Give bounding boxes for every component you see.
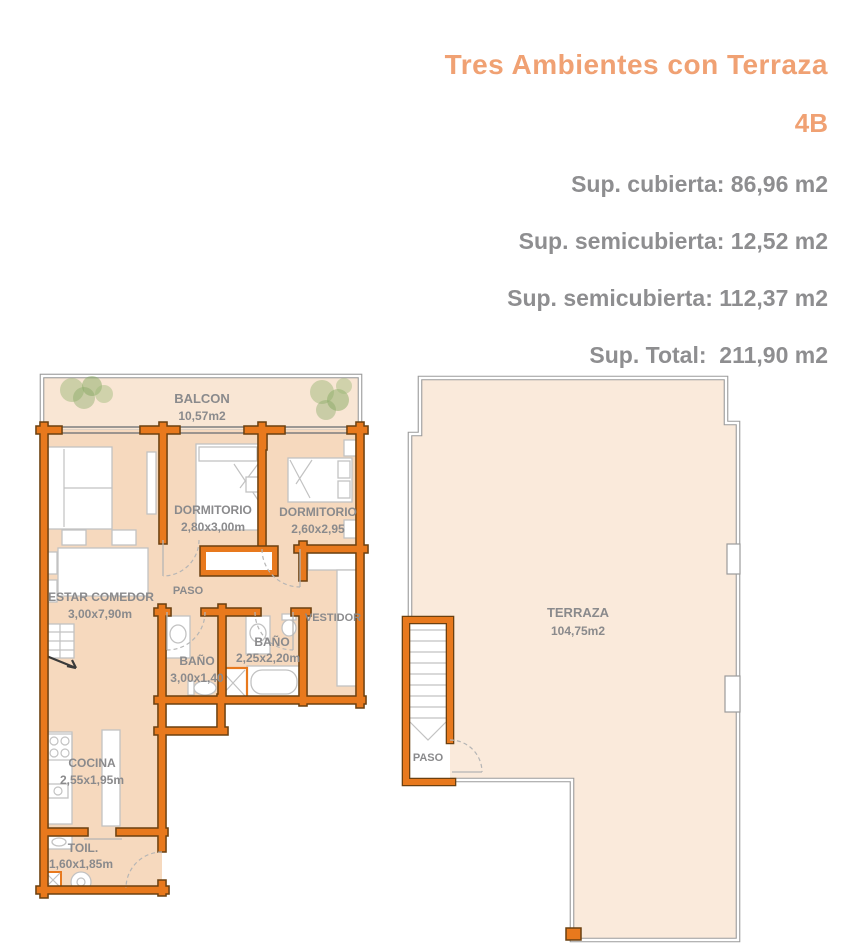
room-label-paso: PASO [173,585,204,597]
apartment-plan: BALCON 10,57m2 DORMITORIO 2,80x3,00m DOR… [40,376,364,894]
room-dims-dormitorio-2: 2,60x2,95 [291,522,345,536]
room-label-balcon: BALCON [174,391,230,406]
wall-closet [200,546,278,576]
floor-plans-canvas: BALCON 10,57m2 DORMITORIO 2,80x3,00m DOR… [0,0,856,950]
room-label-toil: TOIL. [68,841,98,855]
room-label-bano-1: BAÑO [179,653,214,668]
room-dims-estar: 3,00x7,90m [68,607,132,621]
room-label-bano-2: BAÑO [254,634,289,649]
tv-unit-icon [147,452,156,514]
duct-recess [164,702,217,729]
room-label-paso: PASO [413,752,444,764]
terrace-floor [410,378,738,940]
terrace-plan: TERRAZA 104,75m2 PASO [406,378,740,940]
room-dims-balcon: 10,57m2 [178,409,226,423]
room-dims-cocina: 2,55x1,95m [60,773,124,787]
bed-icon [196,444,260,530]
room-dims-bano-1: 3,00x1,40 [170,671,224,685]
room-dims-toil: 1,60x1,85m [49,857,113,871]
floorplan-page: { "header": { "title": "Tres Ambientes c… [0,0,856,950]
room-label-dormitorio-1: DORMITORIO [174,503,252,517]
wall-corner-piece [566,928,581,940]
room-dims-bano-2: 2,25x2,20m [236,651,300,665]
room-label-terraza: TERRAZA [547,605,610,620]
room-dims-terraza: 104,75m2 [551,624,605,638]
room-label-vestidor: VESTIDOR [305,612,361,624]
sofa-icon [48,447,112,529]
room-dims-dormitorio-1: 2,80x3,00m [181,520,245,534]
room-label-cocina: COCINA [68,756,116,770]
room-label-dormitorio-2: DORMITORIO [279,505,357,519]
room-label-estar: ESTAR COMEDOR [48,590,154,604]
